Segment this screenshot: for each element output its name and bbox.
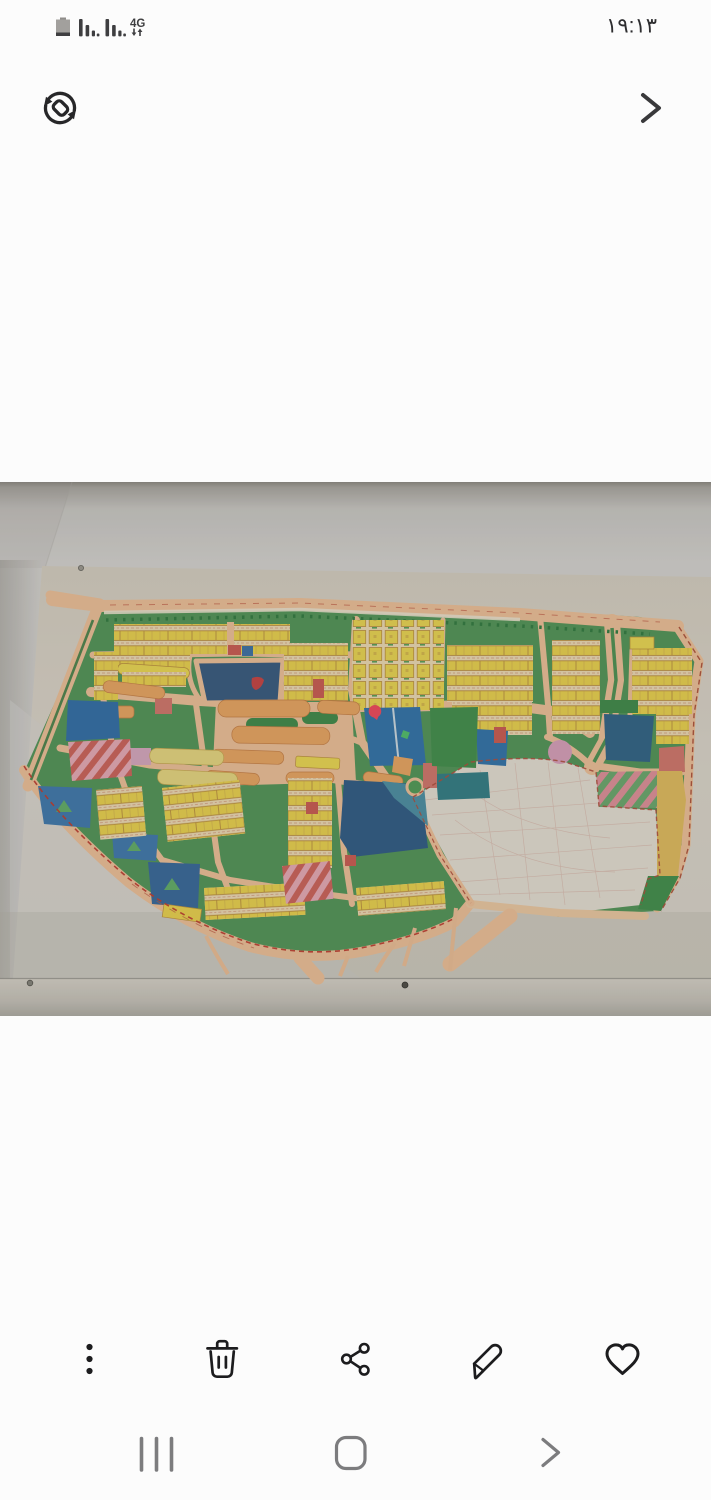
svg-text:۱۹:۱۳: ۱۹:۱۳ <box>606 15 657 38</box>
svg-text:4G: 4G <box>130 18 145 30</box>
